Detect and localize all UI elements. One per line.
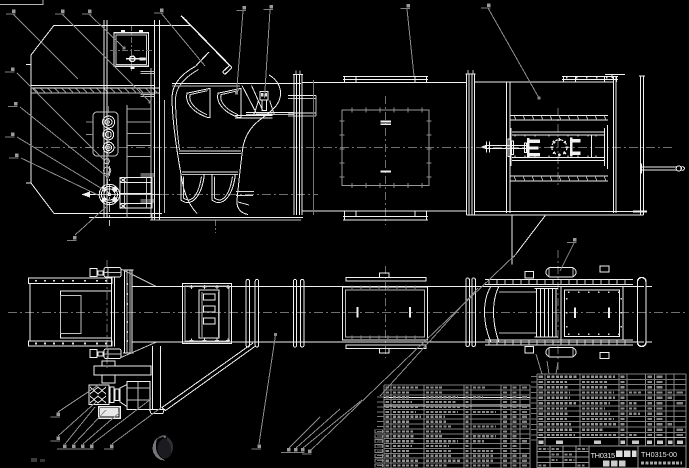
svg-text:TH0315: TH0315 [591, 451, 616, 460]
svg-text:TH0315-00: TH0315-00 [641, 450, 677, 459]
